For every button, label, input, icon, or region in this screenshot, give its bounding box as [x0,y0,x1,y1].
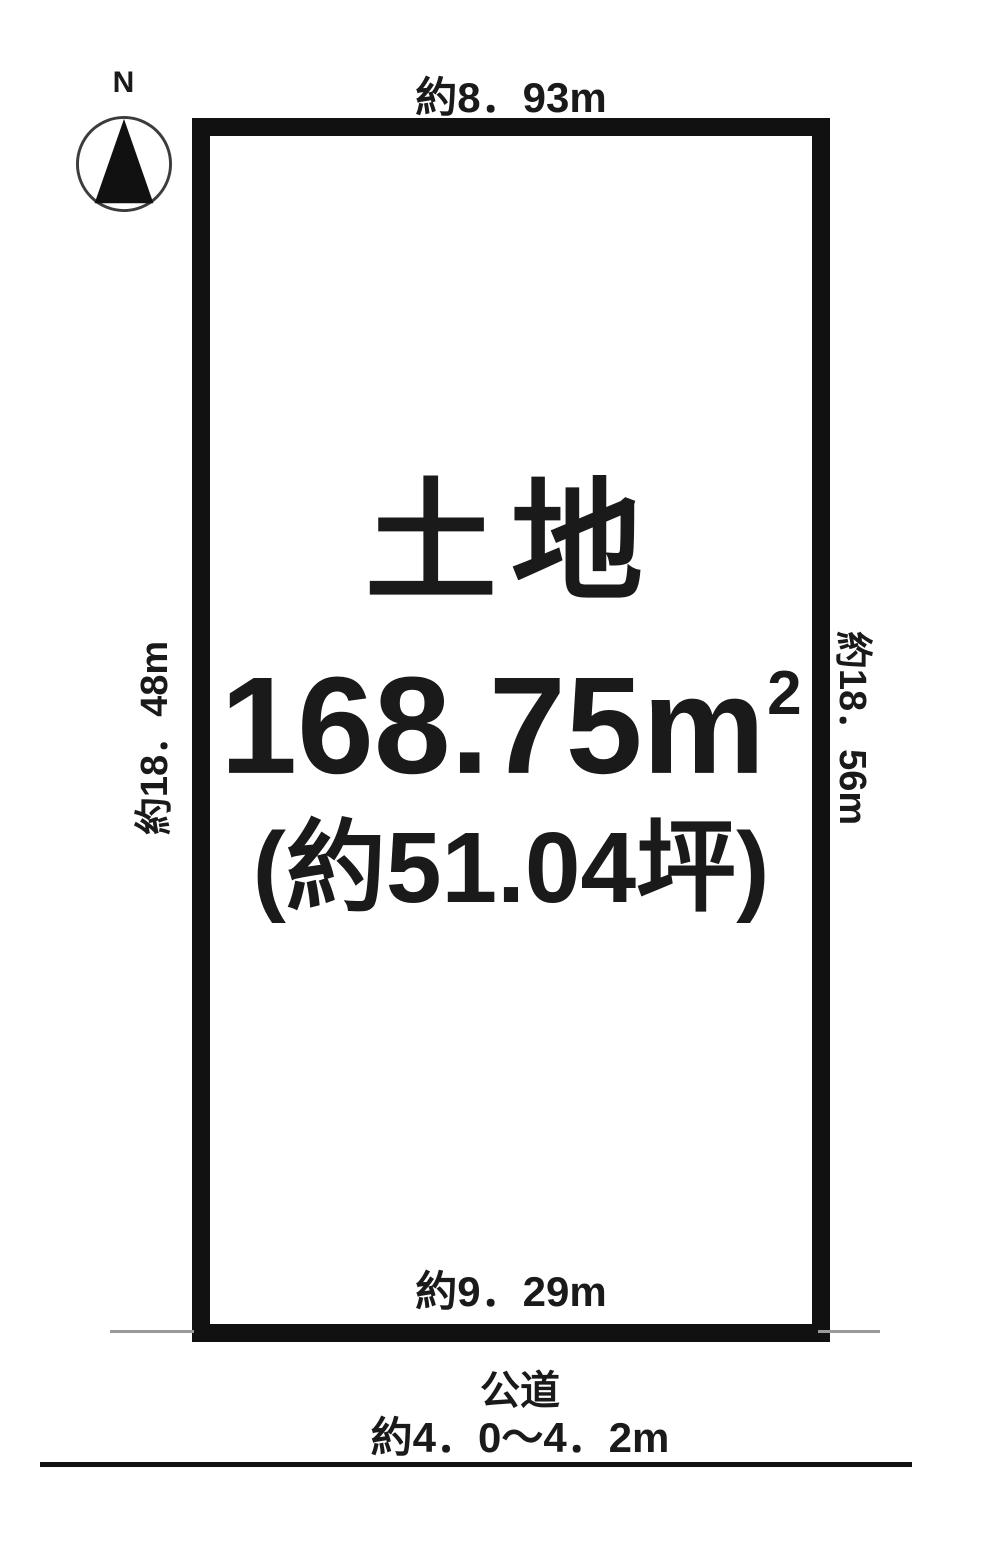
plot-info-block: 土地 168.75m2 (約51.04坪) [192,468,830,934]
dimension-bottom-label: 約9．29m [192,1258,830,1319]
area-number: 168.75m [220,649,765,803]
compass-north-label: N [75,66,173,100]
dimension-right-label: 約18．56m [830,598,874,858]
road-width-label: 約4．0〜4．2m [40,1404,1000,1465]
dimension-top-label: 約8．93m [192,64,830,125]
land-plot-diagram: N 約8．93m 約9．29m 約18．48m 約18．56m 土地 168.7… [0,0,1000,1560]
plot-title: 土地 [192,468,830,618]
plot-area-value: 168.75m2 [192,618,830,802]
road-edge-line [40,1462,912,1467]
extension-line-left [110,1330,194,1333]
compass-needle-icon [75,114,173,214]
compass-icon [75,114,173,214]
plot-area-tsubo: (約51.04坪) [192,802,830,934]
area-superscript: 2 [767,659,801,728]
dimension-left-label: 約18．48m [133,608,177,868]
extension-line-right [818,1330,880,1333]
